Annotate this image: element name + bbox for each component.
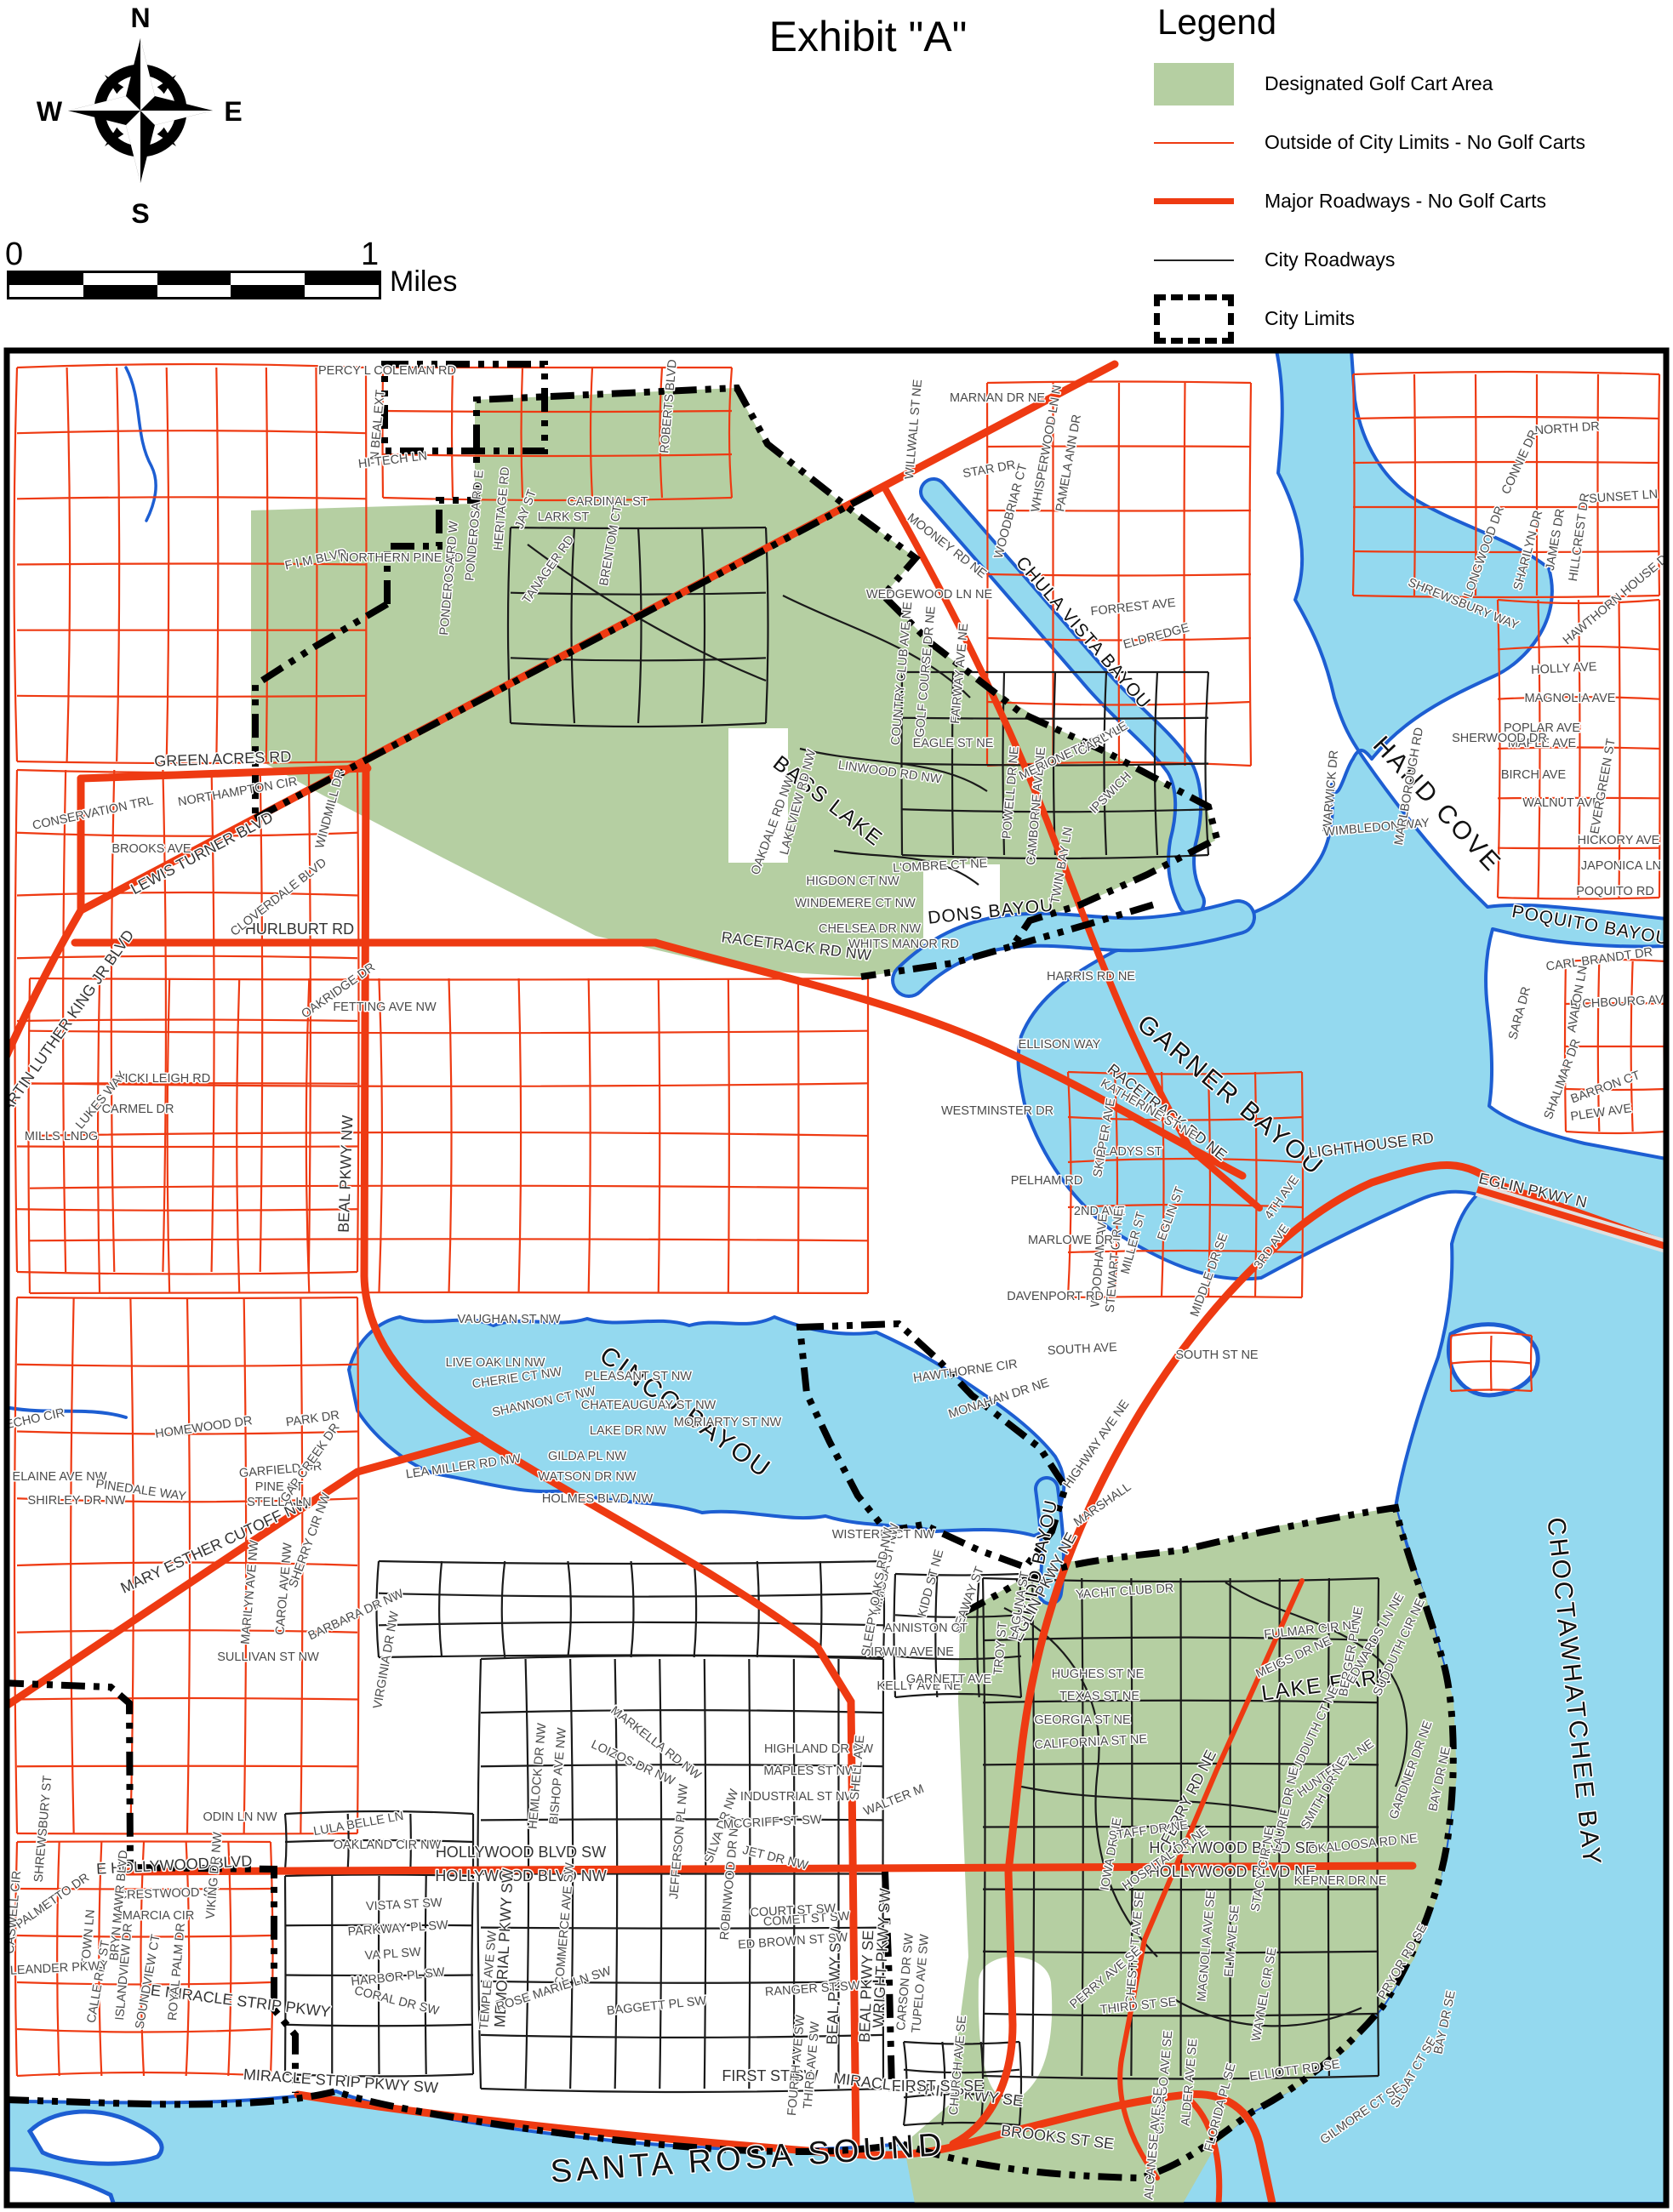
map-label: WEDGEWOOD LN NE [866, 588, 993, 601]
map-label: HUGHES ST NE [1052, 1668, 1145, 1681]
map-label: LAKE DR NW [590, 1424, 667, 1438]
map-label: OAKLAND CIR NW [334, 1839, 442, 1852]
map-label: TEXAS ST NE [1059, 1690, 1139, 1703]
map-label: GARNETT AVE [906, 1673, 992, 1686]
map-label: HOLLYWOOD BLVD NE [1149, 1863, 1316, 1880]
map-label: CRESTWOOD ST [117, 1885, 219, 1902]
map-label: CHATEAUGUAY ST NW [581, 1399, 717, 1412]
map-label: GREEN ACRES RD [154, 748, 292, 770]
map-label: BEAL PKWY NW [335, 1115, 357, 1233]
map-label: KEPNER DR NE [1294, 1874, 1387, 1888]
map-label: PLEW AVE [1570, 1102, 1633, 1124]
map-label: CHELSEA DR NW [819, 922, 921, 936]
map-label: HILLCREST DR [1567, 493, 1592, 583]
map-label: WALNUT AVE [1522, 796, 1601, 810]
map-label: LIVE OAK LN NW [446, 1356, 545, 1370]
map-label: PELHAM RD [1011, 1174, 1083, 1188]
map-label: PLEASANT ST NW [585, 1370, 692, 1383]
map-label: BROOKS AVE [111, 842, 191, 856]
map-label: STAR DR [962, 459, 1016, 482]
map-label: MARNAN DR NE [950, 391, 1045, 405]
map-label: PERCY L COLEMAN RD [318, 364, 456, 378]
map-label: IRWIN AVE NE [871, 1645, 954, 1659]
map-label: MARLOWE DR [1028, 1234, 1113, 1247]
map-label: CHULA VISTA BAYOU [1012, 553, 1154, 713]
map-label: CONSERVATION TRL [31, 794, 155, 833]
map-label: WESTMINSTER DR [941, 1104, 1053, 1118]
map-label: ANNISTON CT [884, 1622, 968, 1635]
map-label: ELAINE AVE NW [13, 1470, 107, 1484]
map-label: GEORGIA ST NE [1034, 1713, 1131, 1727]
map-label: SOUTH AVE [1047, 1341, 1117, 1358]
map-label: VIRGINIA DR NW [371, 1610, 402, 1709]
map-label: VICKI LEIGH RD [117, 1072, 210, 1086]
map-label: JAPONICA LN [1581, 859, 1661, 873]
map-label: EVERGREEN ST [1588, 738, 1619, 835]
map-label: LARK ST [538, 510, 590, 524]
map-label: NORTH DR [1534, 419, 1600, 437]
map-label: CARDINAL ST [567, 495, 648, 509]
map-label: SUNSET LN [1589, 487, 1659, 506]
map-label: SARA DR [1506, 985, 1533, 1041]
map-label: POQUITO RD [1576, 885, 1654, 898]
map-label: WALTER M [862, 1782, 926, 1819]
map-label: EAGLE ST NE [913, 737, 994, 750]
map-label: ODIN LN NW [203, 1810, 277, 1824]
map-label: PARKWAY PL SW [347, 1918, 448, 1939]
map-label: SHIRLEY DR NW [28, 1494, 126, 1508]
map-label: ELDREDGE [1122, 621, 1191, 652]
map-label: JEFFERSON PL NW [667, 1783, 691, 1900]
map-label: CAROL AVE NW [273, 1542, 294, 1635]
map-label: MAGNOLIA AVE [1525, 692, 1616, 705]
map-label: SULLIVAN ST NW [217, 1650, 319, 1664]
map-label: SHERWOOD DR [1452, 732, 1547, 745]
map-label: HURLBURT RD [245, 921, 354, 938]
map-label: VA PL SW [364, 1946, 421, 1964]
map-label: CARMEL DR [102, 1103, 174, 1116]
map-canvas: SANTA ROSA SOUNDCHOCTAWHATCHEE BAYGARNER… [0, 0, 1673, 2212]
map-label: PALMETTO DR [13, 1871, 92, 1931]
map-label: DAVENPORT RD [1007, 1290, 1104, 1303]
map-label: HICKORY AVE [1578, 834, 1660, 847]
map-label: FORREST AVE [1090, 596, 1177, 619]
map-label: KIDD ST NE [916, 1548, 947, 1618]
map-label: WHITS MANOR RD [848, 938, 959, 951]
map-label: HOLLYWOOD BLVD NW [435, 1867, 606, 1884]
map-label: HEMLOCK DR NW [527, 1722, 550, 1829]
map-label: FIRST ST SE [892, 2078, 984, 2095]
map-label: CORAL DR SW [353, 1984, 441, 2018]
map-label: TOWN LN [79, 1909, 98, 1967]
map-label: MAPLES ST NW [763, 1764, 857, 1778]
map-label: VAUGHAN ST NW [457, 1313, 560, 1326]
map-label: MARILYN AVE NW [239, 1540, 262, 1645]
map-label: VISTA ST SW [366, 1896, 443, 1914]
map-label: FETTING AVE NW [333, 1001, 437, 1014]
map-label: HIGDON CT NW [806, 875, 899, 888]
map-label: JAMES DR [1544, 508, 1567, 572]
map-label: ELLISON WAY [1019, 1038, 1101, 1052]
map-label: HOLLY AVE [1531, 660, 1597, 677]
map-label: BIRCH AVE [1501, 768, 1567, 782]
map-label: WATSON DR NW [538, 1470, 636, 1484]
map-label: VIKING DR NW [204, 1832, 226, 1920]
map-label: HOMEWOOD DR [154, 1414, 253, 1441]
map-label: WINDEMERE CT NW [795, 897, 916, 910]
map-label: MILLS LNDG [25, 1130, 98, 1143]
map-label: GILDA PL NW [548, 1450, 626, 1463]
map-label: HOLLYWOOD BLVD SW [436, 1844, 606, 1861]
map-label: MCGRIFF ST SW [723, 1813, 823, 1832]
map-label: HOLMES BLVD NW [542, 1492, 654, 1506]
map-label: SOUTH ST NE [1175, 1348, 1259, 1362]
map-label: MORIARTY ST NW [674, 1416, 782, 1429]
map-label: PAMELA ANN DR [1053, 413, 1084, 513]
map-label: MARCIA CIR [123, 1909, 195, 1923]
map-label: SHREWSBURY ST [32, 1775, 55, 1883]
map-label: HARRIS RD NE [1047, 970, 1135, 983]
map-label: BAGGETT PL SW [606, 1994, 707, 2018]
map-label: SLEEPY OAKS RD NW [859, 1526, 895, 1657]
map-document: N S W E 0 1 Miles Exhibit "A" Legend Des… [0, 0, 1673, 2212]
map-label: BISHOP AVE NW [547, 1727, 569, 1825]
map-label: LUKES WAY [73, 1069, 129, 1132]
map-label: INDUSTRIAL ST NW [740, 1790, 856, 1804]
